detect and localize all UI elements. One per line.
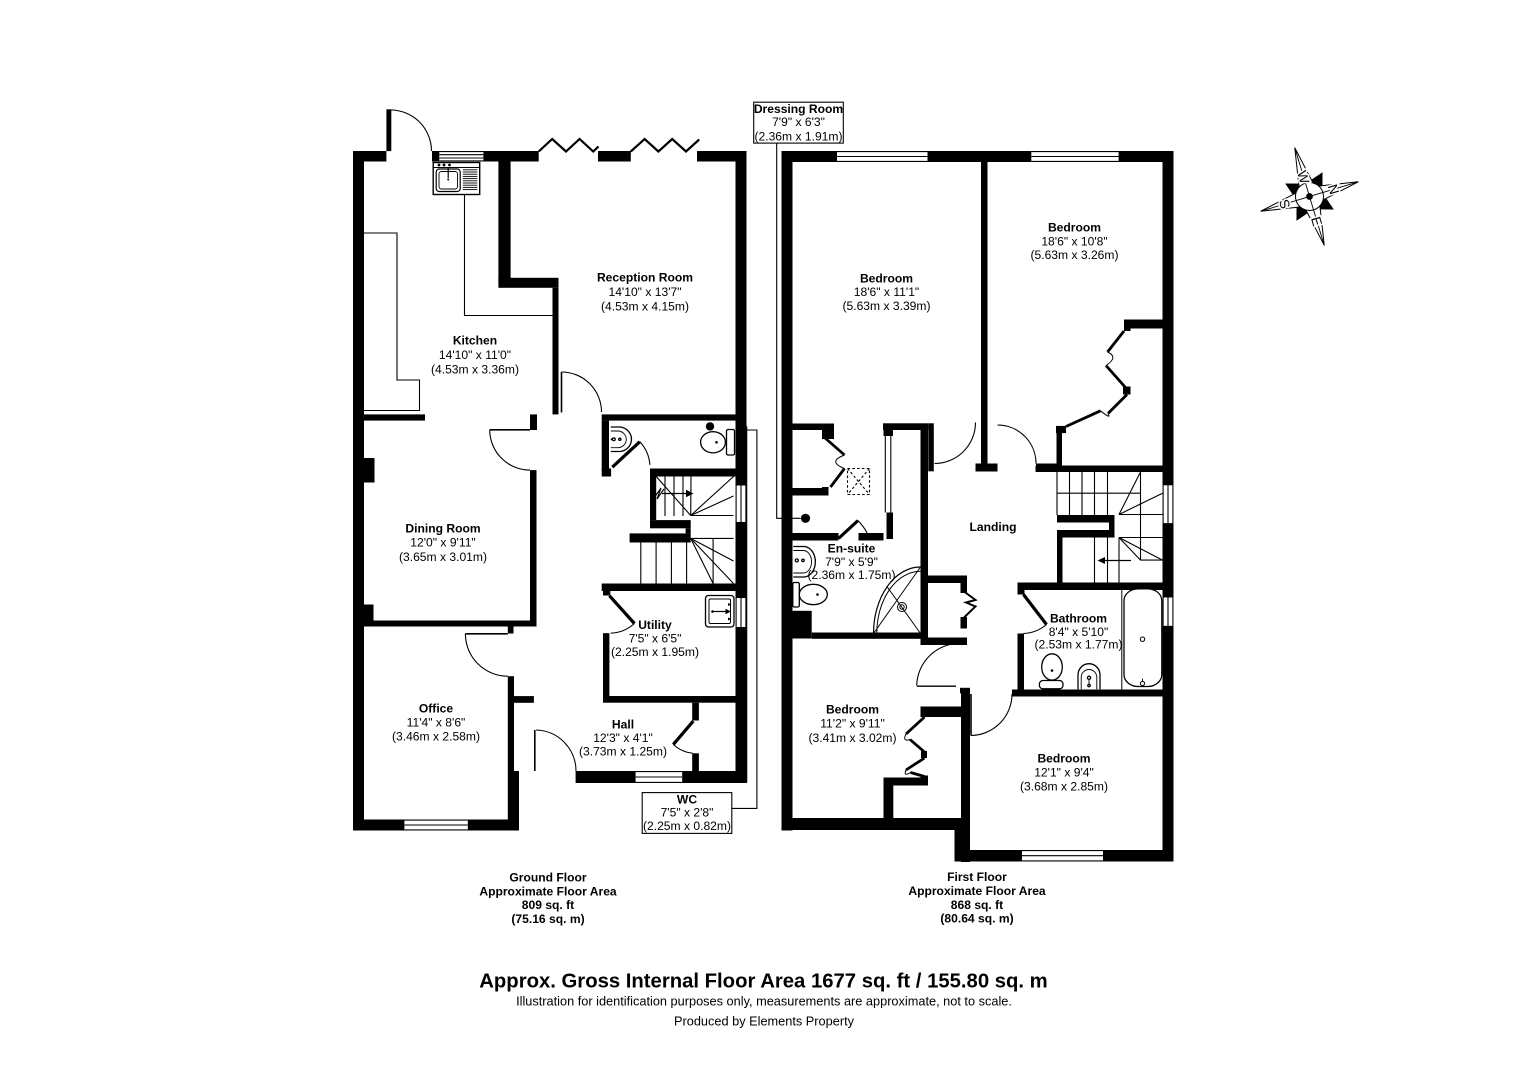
svg-text:Reception Room: Reception Room [597, 270, 693, 284]
svg-text:Dressing Room: Dressing Room [754, 102, 843, 116]
svg-text:7'9" x 5'9": 7'9" x 5'9" [825, 555, 878, 569]
svg-text:14'10" x 13'7": 14'10" x 13'7" [608, 285, 681, 299]
svg-text:7'9" x 6'3": 7'9" x 6'3" [772, 115, 825, 129]
svg-text:(3.68m x 2.85m): (3.68m x 2.85m) [1020, 779, 1108, 793]
svg-text:12'0" x 9'11": 12'0" x 9'11" [410, 536, 475, 550]
svg-text:(2.25m x 1.95m): (2.25m x 1.95m) [611, 645, 699, 659]
svg-text:(4.53m x 3.36m): (4.53m x 3.36m) [431, 362, 519, 376]
svg-text:(5.63m x 3.26m): (5.63m x 3.26m) [1030, 248, 1118, 262]
svg-text:Bedroom: Bedroom [826, 702, 879, 716]
svg-text:Approx. Gross Internal Floor A: Approx. Gross Internal Floor Area 1677 s… [479, 971, 1047, 993]
svg-text:En-suite: En-suite [828, 542, 876, 556]
svg-text:12'3" x 4'1": 12'3" x 4'1" [593, 731, 653, 745]
svg-text:11'2" x 9'11": 11'2" x 9'11" [820, 717, 885, 731]
svg-text:Bathroom: Bathroom [1050, 612, 1107, 626]
svg-text:WC: WC [677, 792, 697, 806]
svg-text:First Floor: First Floor [947, 870, 1007, 884]
svg-text:Utility: Utility [638, 618, 672, 632]
svg-text:Bedroom: Bedroom [860, 271, 913, 285]
svg-text:Office: Office [419, 702, 454, 716]
svg-text:868 sq. ft: 868 sq. ft [951, 898, 1003, 912]
svg-text:7'5" x 6'5": 7'5" x 6'5" [629, 631, 682, 645]
svg-text:Dining Room: Dining Room [405, 521, 480, 535]
svg-text:(4.53m x 4.15m): (4.53m x 4.15m) [601, 299, 689, 313]
svg-text:Bedroom: Bedroom [1037, 751, 1090, 765]
svg-text:809 sq. ft: 809 sq. ft [522, 898, 574, 912]
svg-text:(2.25m x 0.82m): (2.25m x 0.82m) [643, 819, 731, 833]
svg-text:(3.65m x 3.01m): (3.65m x 3.01m) [399, 550, 487, 564]
svg-text:11'4" x 8'6": 11'4" x 8'6" [407, 716, 466, 730]
svg-text:(5.63m x 3.39m): (5.63m x 3.39m) [842, 299, 930, 313]
svg-text:12'1" x 9'4": 12'1" x 9'4" [1034, 765, 1094, 779]
svg-text:(2.53m x 1.77m): (2.53m x 1.77m) [1034, 638, 1122, 652]
svg-text:Approximate Floor Area: Approximate Floor Area [479, 884, 617, 898]
svg-text:Hall: Hall [612, 717, 634, 731]
svg-text:Approximate Floor Area: Approximate Floor Area [908, 884, 1046, 898]
svg-text:(80.64 sq. m): (80.64 sq. m) [940, 911, 1013, 925]
svg-text:Ground Floor: Ground Floor [509, 870, 587, 884]
svg-text:18'6" x 11'1": 18'6" x 11'1" [854, 285, 919, 299]
svg-text:7'5" x 2'8": 7'5" x 2'8" [661, 805, 714, 819]
svg-text:18'6" x 10'8": 18'6" x 10'8" [1041, 234, 1107, 248]
svg-text:(2.36m x 1.91m): (2.36m x 1.91m) [754, 129, 842, 143]
svg-text:(75.16 sq. m): (75.16 sq. m) [511, 912, 584, 926]
svg-text:Illustration for identificatio: Illustration for identification purposes… [516, 994, 1012, 1009]
svg-text:Kitchen: Kitchen [453, 333, 497, 347]
svg-text:(2.36m x 1.75m): (2.36m x 1.75m) [807, 568, 895, 582]
svg-text:(3.41m x 3.02m): (3.41m x 3.02m) [808, 731, 896, 745]
svg-text:(3.46m x 2.58m): (3.46m x 2.58m) [392, 730, 480, 744]
svg-text:Produced by Elements Property: Produced by Elements Property [674, 1014, 855, 1029]
svg-text:Landing: Landing [969, 520, 1016, 534]
svg-text:Bedroom: Bedroom [1048, 220, 1101, 234]
svg-text:14'10" x 11'0": 14'10" x 11'0" [439, 348, 511, 362]
svg-text:(3.73m x 1.25m): (3.73m x 1.25m) [579, 744, 667, 758]
